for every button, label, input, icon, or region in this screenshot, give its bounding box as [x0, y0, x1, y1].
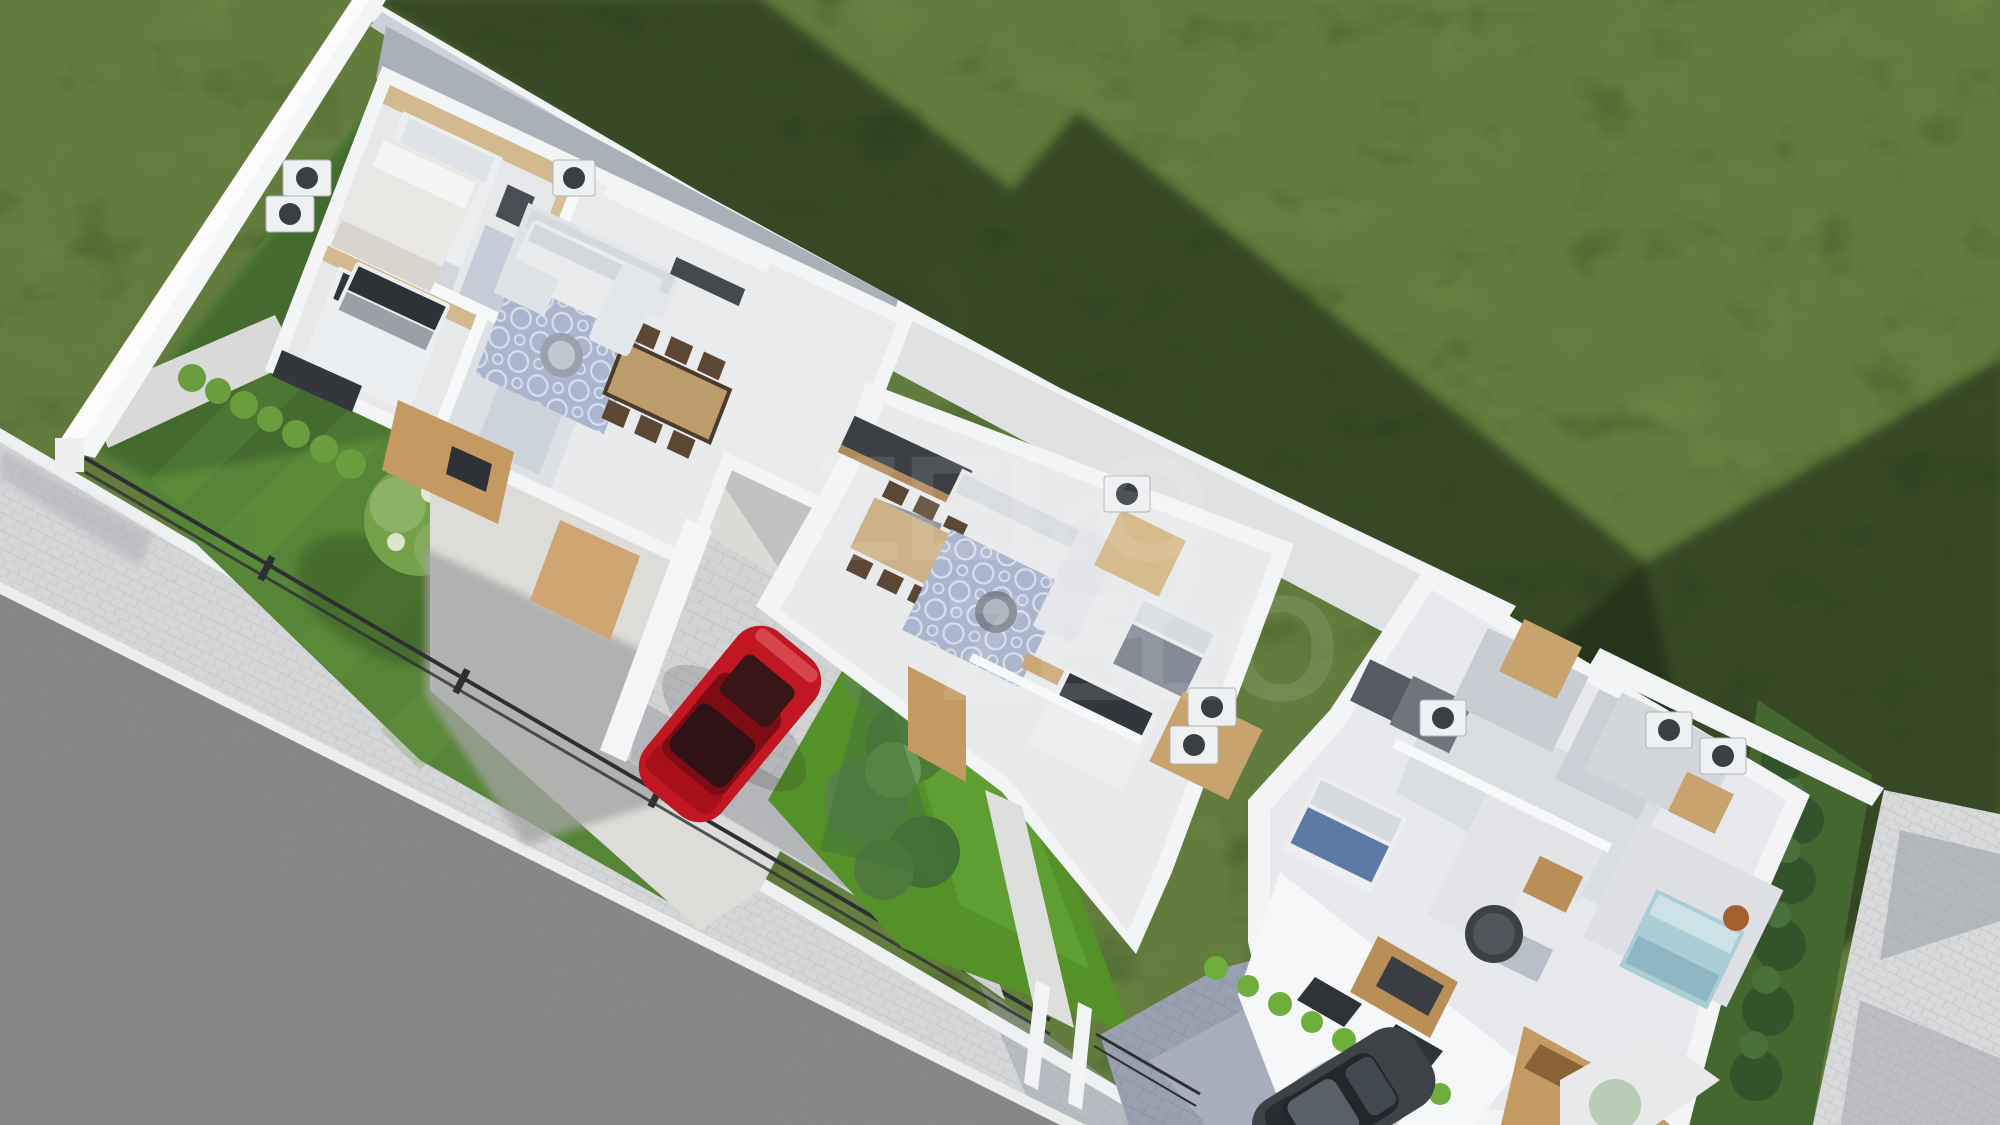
svg-text:ZELO: ZELO: [940, 564, 1340, 732]
